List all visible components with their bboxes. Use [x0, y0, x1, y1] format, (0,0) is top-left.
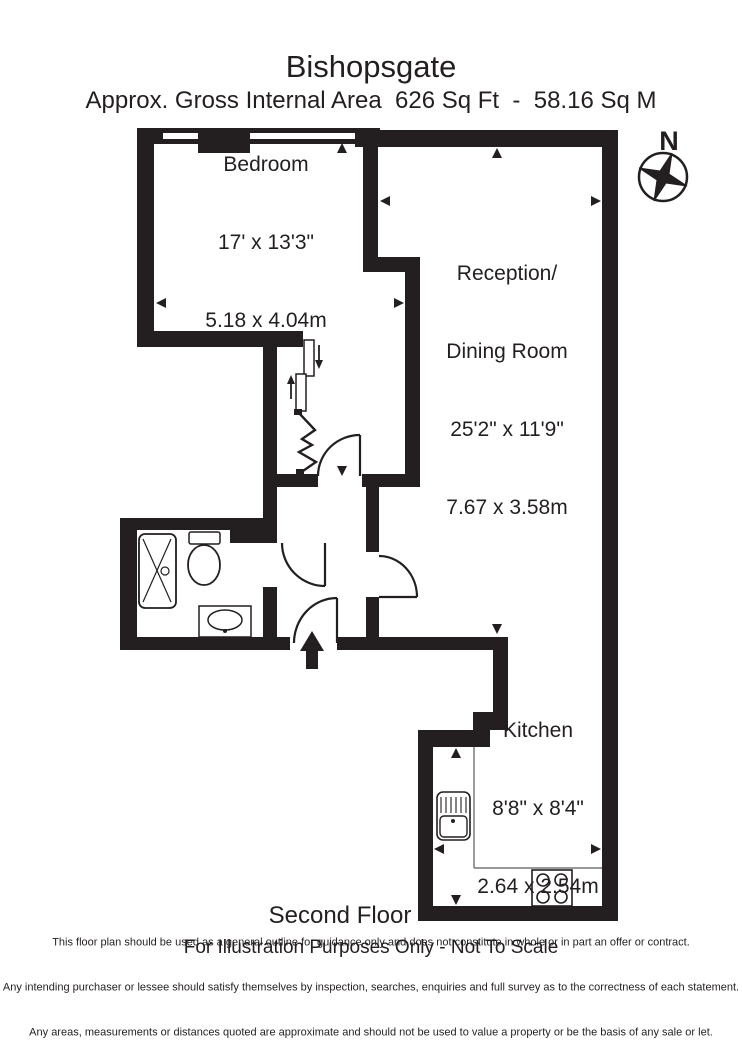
shower: [139, 534, 176, 608]
floor-plan-svg: N: [0, 0, 742, 1050]
bedroom-label: Bedroom 17' x 13'3" 5.18 x 4.04m: [205, 100, 326, 386]
bedroom-name: Bedroom: [205, 152, 326, 178]
bifold-door: [298, 412, 316, 473]
entry-arrow-icon: [300, 631, 324, 669]
reception-label: Reception/ Dining Room 25'2" x 11'9" 7.6…: [446, 209, 567, 573]
kitchen-sink: [437, 792, 470, 840]
compass-north-label: N: [659, 126, 679, 156]
bedroom-dimensions-metric: 5.18 x 4.04m: [205, 308, 326, 334]
disclaimer-line: Any areas, measurements or distances quo…: [3, 1026, 739, 1041]
reception-dimensions-imperial: 25'2" x 11'9": [446, 417, 567, 443]
bedroom-dimensions-imperial: 17' x 13'3": [205, 230, 326, 256]
bathroom-fixtures: [139, 532, 251, 637]
disclaimer-line: Any intending purchaser or lessee should…: [3, 981, 739, 996]
entry-door-arc: [294, 598, 337, 643]
reception-name-line1: Reception/: [446, 261, 567, 287]
kitchen-dimensions-imperial: 8'8" x 8'4": [477, 796, 598, 822]
compass-icon: N: [639, 126, 687, 201]
kitchen-dimensions-metric: 2.64 x 2.54m: [477, 874, 598, 900]
reception-name-line2: Dining Room: [446, 339, 567, 365]
bathroom-door-arc: [282, 543, 325, 586]
doors: [282, 435, 417, 643]
reception-door-arc: [379, 556, 417, 597]
kitchen-name: Kitchen: [477, 718, 598, 744]
reception-dimensions-metric: 7.67 x 3.58m: [446, 495, 567, 521]
disclaimer-line: This floor plan should be used as a gene…: [3, 936, 739, 951]
basin: [199, 606, 251, 637]
floorplan-page: Bishopsgate Approx. Gross Internal Area …: [0, 0, 742, 1050]
toilet: [188, 532, 220, 585]
disclaimer: This floor plan should be used as a gene…: [3, 906, 739, 1050]
